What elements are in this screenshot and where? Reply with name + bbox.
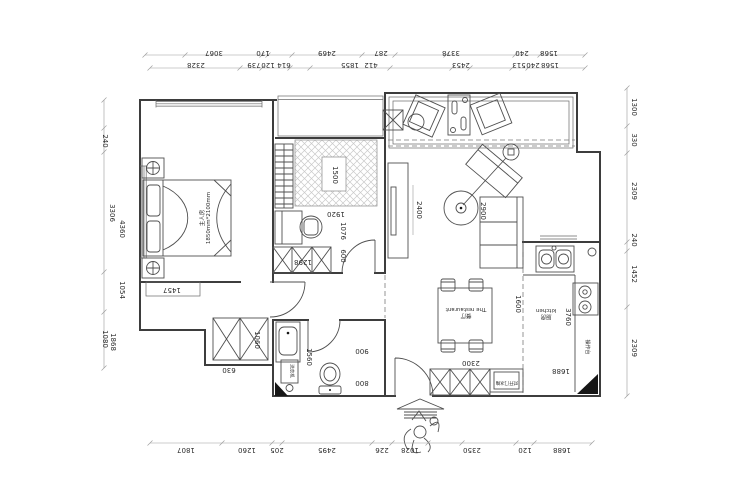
- tv-cabinet: [388, 163, 413, 258]
- dining-cabinets: [430, 369, 490, 395]
- entry-bench-box: [146, 282, 200, 296]
- wardrobe-rail: [275, 144, 293, 208]
- sofa: [466, 144, 523, 268]
- dining-table-and-chairs: [438, 279, 492, 352]
- nightstand-lamp-bottom: [142, 258, 164, 278]
- study-cabinets: [273, 247, 331, 273]
- floor-plan-drawing: [0, 0, 740, 500]
- entry-canopy-icon: [397, 399, 444, 418]
- hall-cabinets: [213, 318, 268, 360]
- nightstand-lamp-top: [142, 158, 164, 178]
- desk-and-chair: [275, 211, 322, 244]
- balcony-furniture: [383, 93, 512, 137]
- door-swings: [270, 240, 433, 396]
- walls: [140, 93, 600, 396]
- kitchen-fixtures: [523, 236, 598, 392]
- wardrobe-hatch-area: [295, 140, 377, 206]
- arc-floor-lamp-and-rug: [444, 144, 519, 225]
- bed: [143, 180, 231, 256]
- fridge: [490, 369, 523, 392]
- bathroom-fixtures: [276, 322, 341, 394]
- floor-plan-canvas: 3067170246928733782401568232873912061418…: [0, 0, 740, 500]
- dimension-lines: [102, 53, 630, 446]
- kitchen-corner-triangle: [577, 374, 598, 394]
- north-arrow-doodle: [404, 411, 439, 453]
